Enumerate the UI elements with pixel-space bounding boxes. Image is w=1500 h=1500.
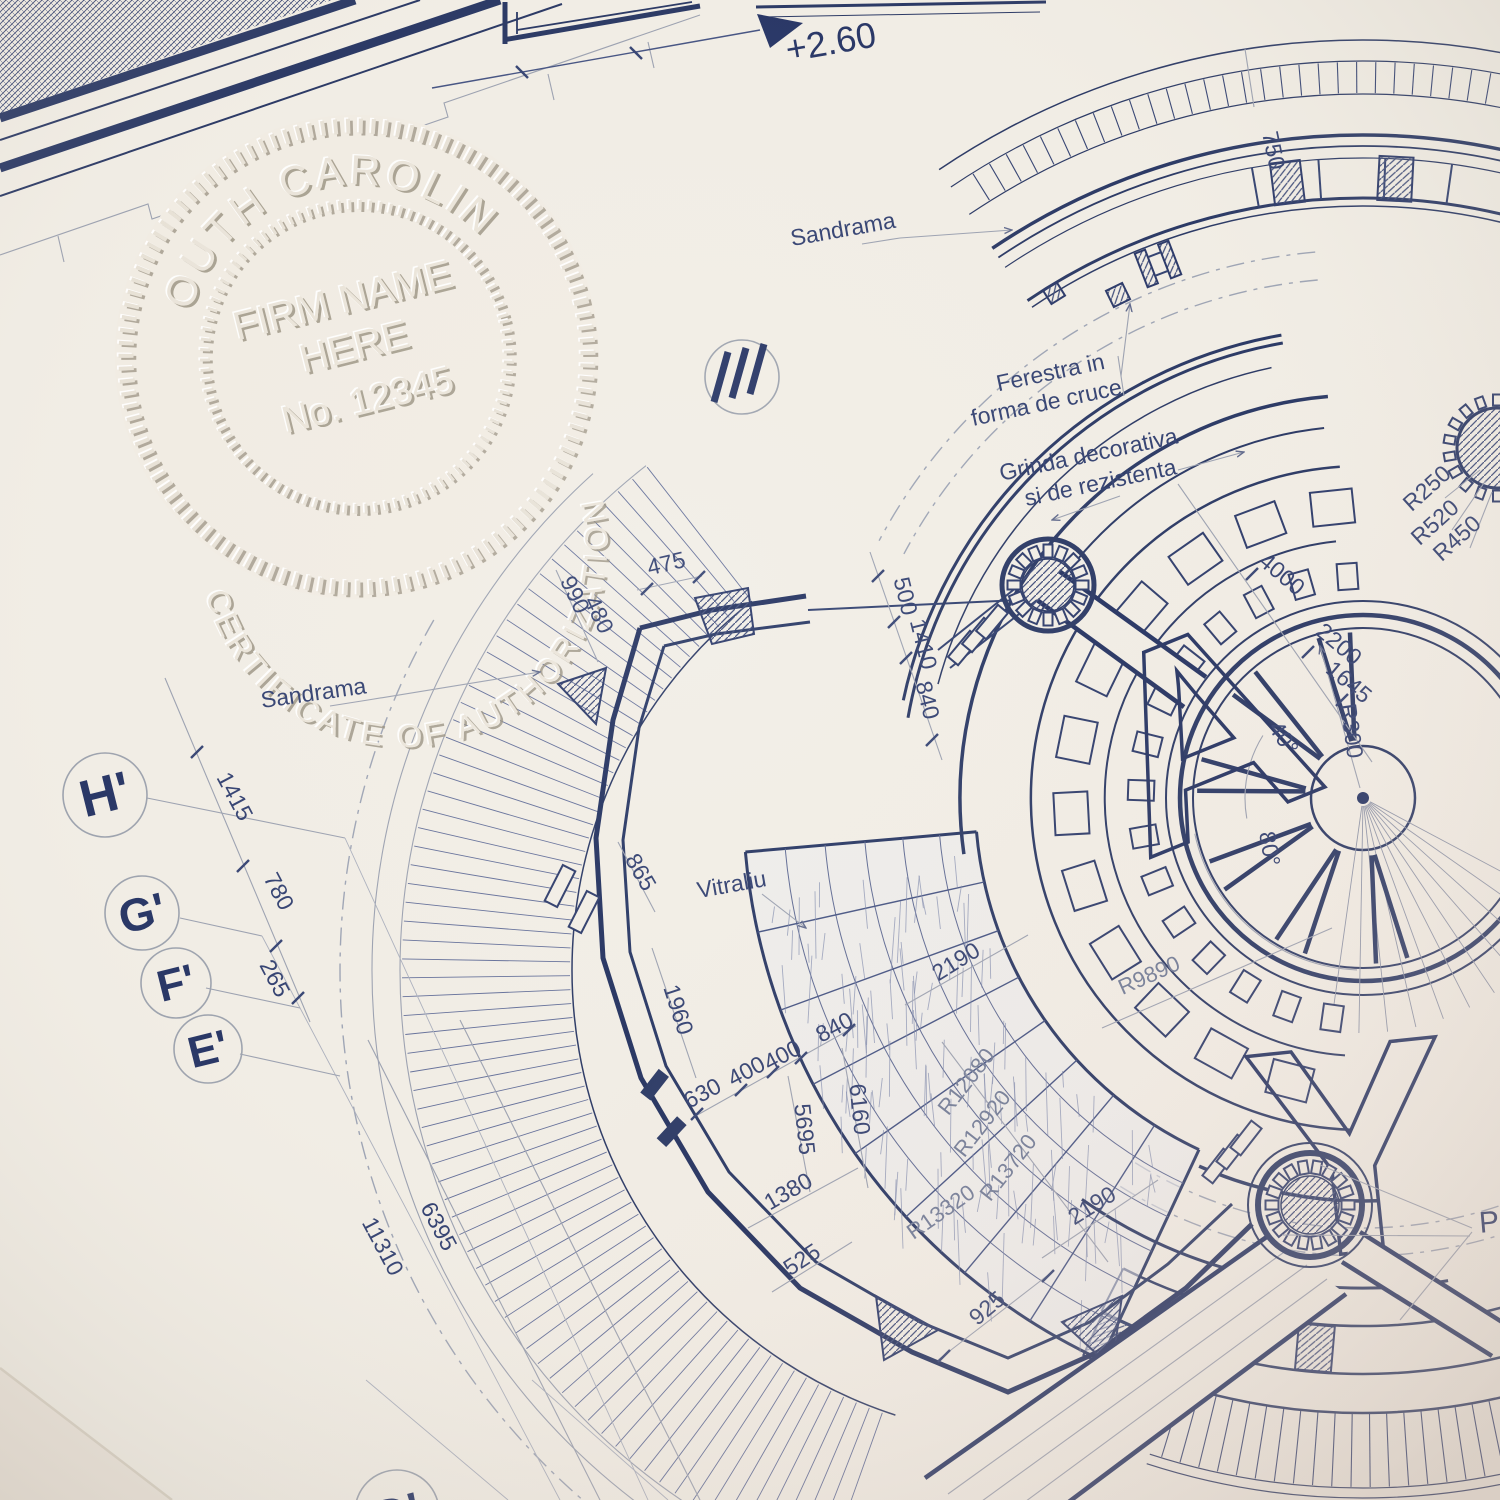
blueprint-drawing: +2.60 A [0,0,1500,1500]
photo-vignette [0,0,1500,1500]
blueprint-photo: +2.60 A [0,0,1500,1500]
